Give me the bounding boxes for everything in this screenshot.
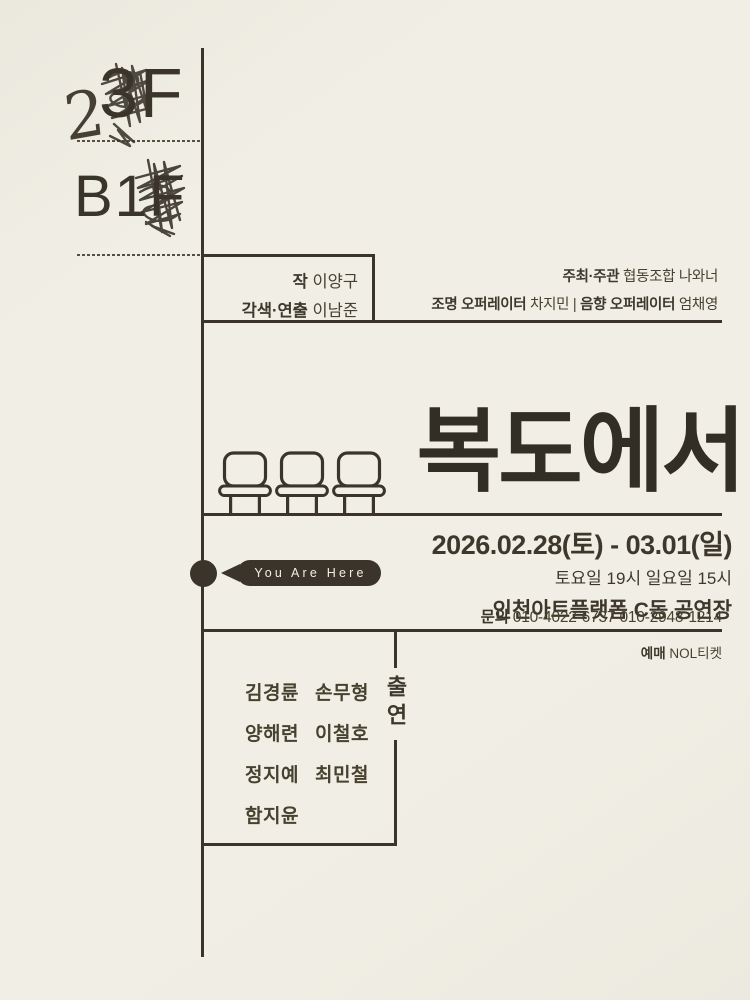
operator-credit: 조명 오퍼레이터 차지민 | 음향 오퍼레이터 엄채영 <box>431 291 718 319</box>
scribble-icon <box>130 156 188 240</box>
chairs-row <box>218 451 386 513</box>
divider-line-title <box>201 513 722 516</box>
cast-member: 김경륜 <box>245 678 299 705</box>
map-dot-icon <box>190 560 217 587</box>
divider-line-credits <box>201 320 722 323</box>
chair-icon <box>275 451 329 513</box>
credit-divider: | <box>573 297 576 313</box>
cast-member: 정지예 <box>245 760 299 787</box>
contact-numbers: 010-4022-6737 010-2948-1214 <box>513 609 722 626</box>
writer-name: 이양구 <box>312 273 358 291</box>
ticketing-vendor: NOL티켓 <box>669 646 722 661</box>
director-label: 각색·연출 <box>242 302 308 320</box>
cast-member: 함지윤 <box>245 801 299 828</box>
poster: 3F 2 B1F 작 이양구 각색·연출 이남준 주최·주 <box>0 0 750 1000</box>
cast-box: 김경륜 양해련 정지예 함지윤 손무형 이철호 최민철 <box>201 629 397 846</box>
writer-credit: 작 이양구 <box>204 268 358 297</box>
writer-label: 작 <box>293 273 308 291</box>
chair-icon <box>218 451 272 513</box>
show-times: 토요일 19시 일요일 15시 <box>432 564 732 589</box>
sound-operator-label: 음향 오퍼레이터 <box>580 297 675 313</box>
contact-label: 문의 <box>481 609 509 626</box>
cast-member: 양해련 <box>245 719 299 746</box>
cast-column-2: 손무형 이철호 최민철 <box>315 678 369 787</box>
ticketing-label: 예매 <box>641 646 666 661</box>
chair-icon <box>332 451 386 513</box>
scribble-icon <box>94 58 162 150</box>
host-credit: 주최·주관 협동조합 나와너 <box>431 263 718 291</box>
contact-info: 문의 010-4022-6737 010-2948-1214 <box>481 605 722 627</box>
show-dates: 2026.02.28(토) - 03.01(일) <box>432 523 732 562</box>
sound-operator-name: 엄채영 <box>679 297 718 313</box>
writer-director-credits: 작 이양구 각색·연출 이남준 <box>201 254 375 323</box>
organizer-credits: 주최·주관 협동조합 나와너 조명 오퍼레이터 차지민 | 음향 오퍼레이터 엄… <box>431 263 718 320</box>
cast-column-1: 김경륜 양해련 정지예 함지윤 <box>245 678 299 828</box>
floor-divider-dashed-line-bottom <box>77 254 202 256</box>
host-label: 주최·주관 <box>563 269 620 285</box>
cast-member: 손무형 <box>315 678 369 705</box>
ticketing-info: 예매 NOL티켓 <box>641 642 722 662</box>
cast-heading: 출연 <box>380 668 411 740</box>
you-are-here-label: You Are Here <box>251 566 366 580</box>
cast-member: 최민철 <box>315 760 369 787</box>
lighting-operator-label: 조명 오퍼레이터 <box>431 297 526 313</box>
show-title: 복도에서 <box>416 406 743 498</box>
host-name: 협동조합 나와너 <box>623 269 718 285</box>
cast-member: 이철호 <box>315 719 369 746</box>
lighting-operator-name: 차지민 <box>530 297 569 313</box>
you-are-here-pill: You Are Here <box>237 560 381 586</box>
director-name: 이남준 <box>312 302 358 320</box>
